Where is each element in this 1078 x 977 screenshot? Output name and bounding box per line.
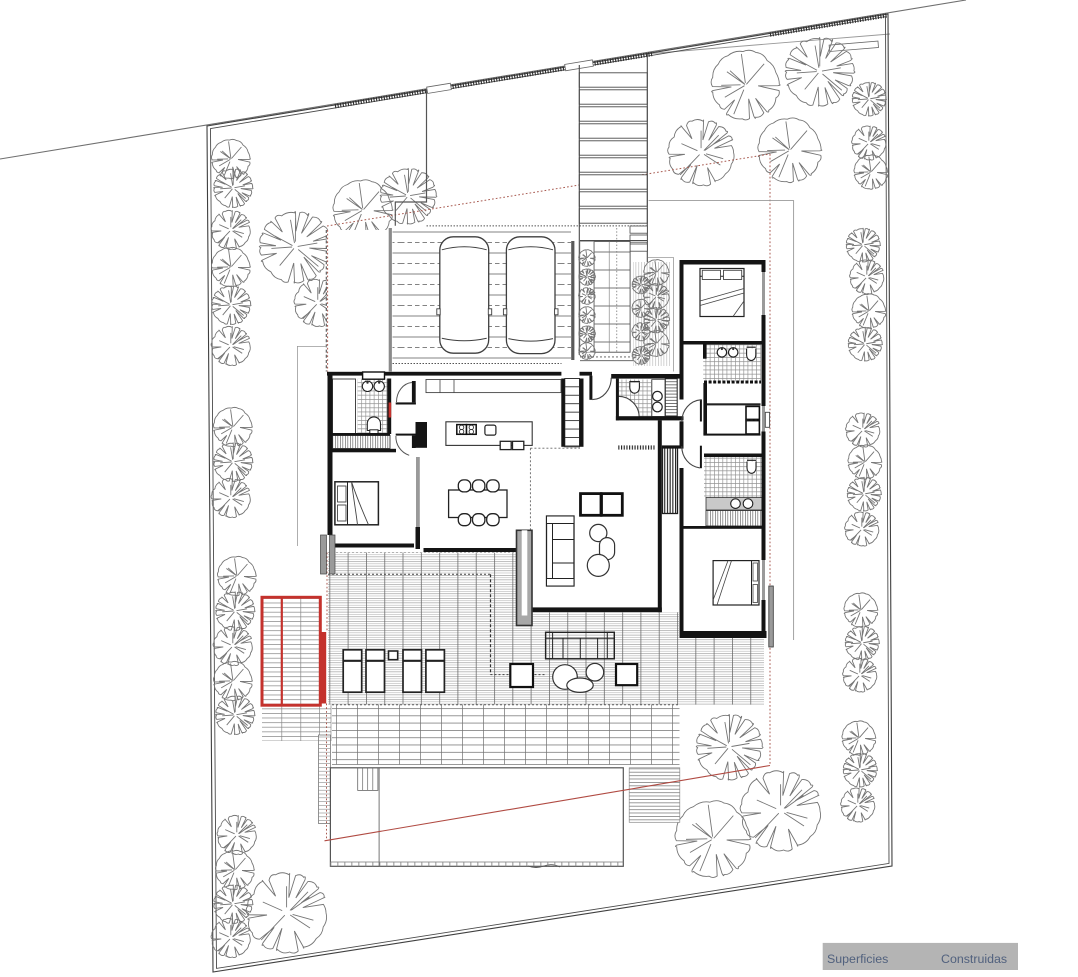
svg-text:Construidas: Construidas	[941, 952, 1007, 966]
svg-text:Superficies: Superficies	[827, 952, 888, 966]
